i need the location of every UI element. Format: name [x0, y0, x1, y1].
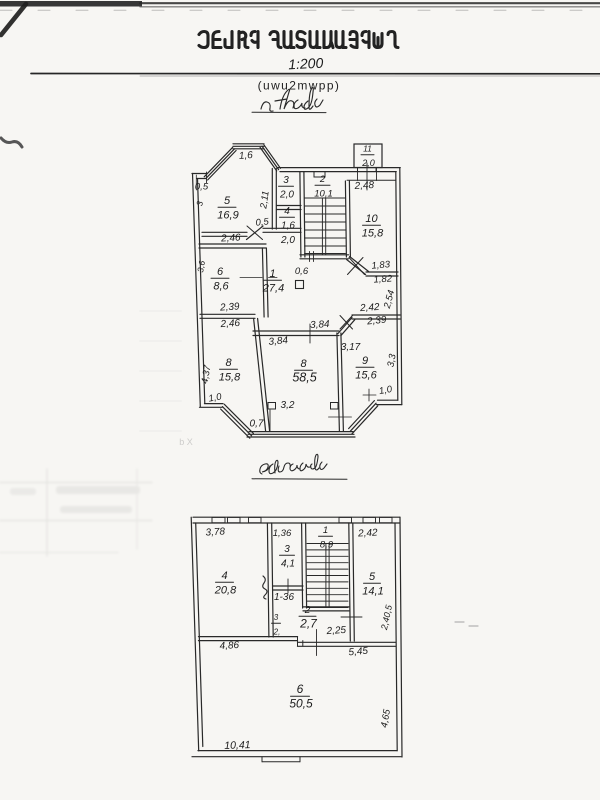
- svg-text:0,5: 0,5: [195, 182, 209, 193]
- svg-text:5: 5: [369, 571, 376, 583]
- svg-text:1,6: 1,6: [281, 221, 295, 232]
- svg-text:2,42: 2,42: [359, 302, 381, 314]
- svg-text:10: 10: [365, 213, 378, 225]
- svg-text:10,1: 10,1: [314, 189, 333, 200]
- svg-text:3: 3: [283, 175, 289, 186]
- svg-text:8,6: 8,6: [213, 281, 229, 293]
- svg-text:8,9: 8,9: [320, 540, 334, 551]
- svg-text:27,4: 27,4: [262, 283, 284, 295]
- svg-text:3: 3: [274, 613, 279, 622]
- svg-text:0,7: 0,7: [250, 419, 264, 430]
- svg-text:50,5: 50,5: [289, 697, 313, 711]
- svg-text:8: 8: [300, 358, 307, 370]
- svg-text:1,0: 1,0: [378, 384, 394, 397]
- svg-text:3: 3: [284, 544, 290, 555]
- svg-text:2,39: 2,39: [365, 314, 387, 327]
- svg-text:1,83: 1,83: [371, 259, 391, 272]
- svg-text:15,8: 15,8: [362, 228, 384, 240]
- svg-text:1,36: 1,36: [273, 528, 292, 539]
- svg-text:3,6: 3,6: [195, 260, 207, 274]
- svg-text:20,8: 20,8: [214, 585, 237, 597]
- svg-text:b X: b X: [179, 437, 193, 447]
- svg-text:8: 8: [225, 357, 232, 369]
- svg-text:2: 2: [304, 605, 311, 616]
- svg-text:4: 4: [221, 570, 227, 582]
- svg-text:3,17: 3,17: [341, 342, 361, 353]
- svg-text:10,41: 10,41: [224, 739, 251, 752]
- svg-text:15,8: 15,8: [219, 372, 241, 384]
- svg-text:1,6: 1,6: [239, 150, 254, 162]
- svg-text:1: 1: [323, 525, 328, 536]
- svg-text:2,0: 2,0: [280, 235, 295, 246]
- svg-text:14,1: 14,1: [362, 586, 383, 598]
- svg-text:1: 1: [269, 268, 275, 280]
- svg-text:3,3: 3,3: [385, 352, 398, 368]
- svg-text:4,65: 4,65: [379, 708, 393, 729]
- svg-text:2,40,5: 2,40,5: [379, 603, 394, 632]
- svg-text:11: 11: [363, 144, 372, 154]
- svg-text:58,5: 58,5: [292, 371, 316, 385]
- svg-text:2,7: 2,7: [299, 617, 318, 631]
- svg-text:3,84: 3,84: [310, 319, 330, 331]
- svg-text:2,46: 2,46: [220, 232, 241, 244]
- svg-text:6: 6: [217, 266, 224, 278]
- svg-text:4,37: 4,37: [200, 364, 214, 385]
- svg-text:4: 4: [284, 206, 290, 217]
- svg-text:6: 6: [297, 682, 304, 696]
- svg-text:16,9: 16,9: [217, 210, 238, 222]
- svg-text:9: 9: [362, 355, 368, 367]
- svg-text:4,1: 4,1: [281, 559, 295, 570]
- svg-text:2,25: 2,25: [325, 625, 347, 637]
- svg-text:2,11: 2,11: [258, 190, 272, 210]
- svg-text:2: 2: [319, 174, 326, 185]
- svg-text:1:200: 1:200: [288, 55, 324, 73]
- svg-text:2,0: 2,0: [361, 158, 375, 168]
- svg-text:2,0: 2,0: [279, 190, 294, 201]
- svg-text:1,82: 1,82: [373, 273, 393, 285]
- svg-text:0,6: 0,6: [295, 266, 309, 277]
- svg-text:3,2: 3,2: [281, 400, 295, 411]
- svg-text:15,6: 15,6: [355, 370, 377, 382]
- svg-text:2,46: 2,46: [219, 318, 241, 330]
- svg-text:2,39: 2,39: [219, 301, 241, 313]
- svg-text:2,48: 2,48: [353, 180, 374, 192]
- svg-text:3: 3: [194, 200, 205, 207]
- svg-text:5: 5: [224, 195, 231, 207]
- svg-text:4,86: 4,86: [219, 640, 239, 652]
- svg-text:5,45: 5,45: [348, 646, 369, 659]
- svg-text:1-36: 1-36: [274, 592, 294, 603]
- svg-text:2,42: 2,42: [357, 527, 378, 539]
- svg-text:3,84: 3,84: [268, 335, 289, 348]
- svg-text:1,0: 1,0: [208, 391, 224, 404]
- svg-text:3,78: 3,78: [205, 526, 226, 538]
- svg-text:2,: 2,: [273, 628, 281, 637]
- svg-text:0,5: 0,5: [255, 216, 270, 228]
- svg-text:2,54: 2,54: [382, 289, 398, 311]
- svg-text:(uwu2mwpp): (uwu2mwpp): [258, 79, 341, 93]
